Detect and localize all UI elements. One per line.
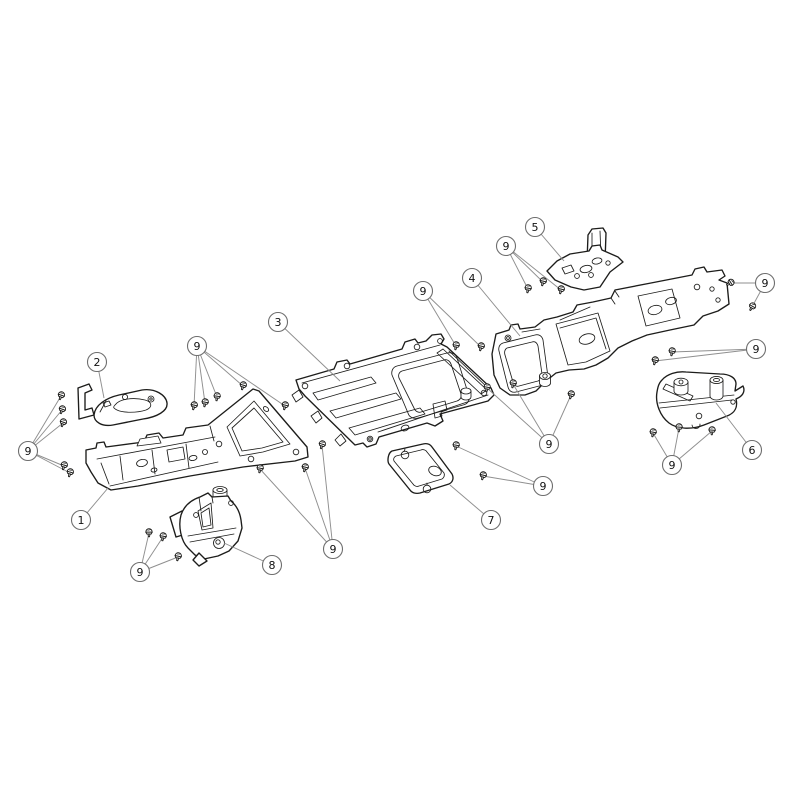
callout-9: 9 — [663, 456, 682, 475]
screw-fastener — [651, 356, 659, 365]
callout-number: 8 — [269, 559, 276, 572]
callout-number: 4 — [469, 272, 476, 285]
screw-fastener — [539, 277, 547, 286]
leader-line-9 — [260, 469, 333, 549]
part-2-front-bracket — [78, 384, 167, 425]
exploded-parts-diagram: 1234567899999999999 — [0, 0, 800, 800]
screw-fastener — [301, 463, 309, 472]
screw-fastener — [567, 390, 575, 399]
screw-fastener — [57, 391, 66, 401]
callout-9: 9 — [534, 477, 553, 496]
callout-7: 7 — [482, 511, 501, 530]
screw-fastener — [676, 423, 683, 432]
callout-number: 5 — [532, 221, 539, 234]
callout-9: 9 — [540, 435, 559, 454]
screw-fastener — [668, 347, 676, 356]
screw-fastener — [709, 426, 716, 435]
callout-number: 7 — [488, 514, 495, 527]
callout-9: 9 — [188, 337, 207, 356]
part-3-center-skid-plate — [292, 334, 494, 447]
screw-fastener — [649, 428, 657, 437]
leader-line-9 — [456, 446, 543, 486]
screw-fastener — [281, 401, 289, 410]
callout-6: 6 — [743, 441, 762, 460]
callout-9: 9 — [324, 540, 343, 559]
screw-fastener — [452, 341, 460, 350]
callout-number: 9 — [503, 240, 510, 253]
callout-number: 1 — [78, 514, 85, 527]
screw-fastener — [66, 468, 74, 478]
callout-number: 9 — [420, 285, 427, 298]
leader-line-3 — [278, 322, 340, 381]
screw-fastener — [59, 418, 68, 428]
callout-9: 9 — [747, 340, 766, 359]
screw-fastener — [557, 285, 565, 294]
callout-number: 9 — [25, 445, 32, 458]
callout-9: 9 — [497, 237, 516, 256]
callout-9: 9 — [19, 442, 38, 461]
callout-8: 8 — [263, 556, 282, 575]
callout-number: 9 — [669, 459, 676, 472]
screw-fastener — [60, 461, 68, 471]
leader-line-9 — [487, 388, 549, 444]
callout-number: 2 — [94, 356, 101, 369]
screw-fastener — [524, 284, 532, 293]
callout-number: 9 — [546, 438, 553, 451]
screw-fastener — [146, 529, 152, 537]
callout-number: 9 — [540, 480, 547, 493]
screw-fastener — [318, 440, 327, 450]
callout-number: 9 — [753, 343, 760, 356]
callout-9: 9 — [756, 274, 775, 293]
part-5-top-bracket — [547, 228, 623, 290]
part-6-rear-bracket — [657, 372, 744, 429]
leader-line-4 — [472, 278, 520, 336]
diagram-canvas: 1234567899999999999 — [0, 0, 800, 800]
callout-9: 9 — [414, 282, 433, 301]
callout-9: 9 — [131, 563, 150, 582]
parts-layer — [78, 228, 744, 566]
part-7-access-panel — [388, 444, 453, 494]
callout-3: 3 — [269, 313, 288, 332]
screw-fastener — [747, 302, 757, 312]
callout-number: 6 — [749, 444, 756, 457]
screw-fastener — [190, 401, 198, 410]
screw-fastener — [452, 441, 460, 450]
callout-number: 9 — [330, 543, 337, 556]
callout-number: 9 — [762, 277, 769, 290]
callout-4: 4 — [463, 269, 482, 288]
screw-fastener — [174, 552, 182, 561]
callout-5: 5 — [526, 218, 545, 237]
callout-2: 2 — [88, 353, 107, 372]
screw-fastener — [213, 392, 220, 401]
callout-number: 3 — [275, 316, 282, 329]
screw-fastener — [159, 532, 167, 541]
callout-1: 1 — [72, 511, 91, 530]
leader-line-9 — [197, 346, 285, 406]
screw-fastener — [477, 342, 485, 351]
screw-fastener — [201, 398, 209, 407]
callout-number: 9 — [194, 340, 201, 353]
screw-fastener — [239, 381, 247, 391]
screw-fastener — [479, 471, 487, 480]
callout-number: 9 — [137, 566, 144, 579]
